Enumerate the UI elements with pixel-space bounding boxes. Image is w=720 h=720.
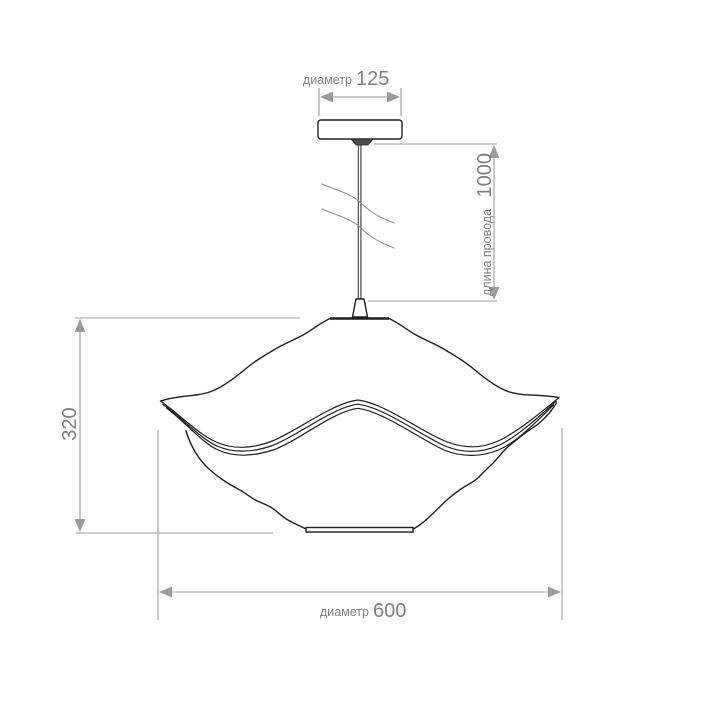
canopy-body	[318, 120, 402, 139]
dim-canopy-diameter-label: диаметр	[303, 73, 352, 87]
dim-canopy-diameter-value: 125	[356, 68, 389, 90]
dim-cord-length-text: длина провода 1000	[474, 153, 496, 296]
arrow-right	[548, 587, 561, 598]
pendant-lamp-drawing: диаметр 125 длина провода 1000 320 диаме…	[0, 0, 720, 720]
shade-upper-left-outline	[196, 319, 330, 396]
dim-shade-height-value: 320	[59, 407, 81, 440]
dim-cord-length-label: длина провода	[480, 209, 494, 296]
shade-lower-left-outline	[186, 431, 306, 529]
rim-line-top	[161, 398, 560, 448]
dim-shade-diameter: диаметр 600	[158, 428, 562, 622]
dim-cord-length: длина провода 1000	[368, 144, 500, 301]
dim-shade-height: 320	[59, 318, 300, 533]
rim-line-bottom	[167, 405, 554, 455]
dim-cord-length-value: 1000	[474, 153, 496, 198]
shade-bottom-foot	[306, 528, 413, 533]
shade-right-wing-tip	[523, 395, 559, 398]
arrow-down	[75, 519, 86, 532]
arrow-right	[387, 92, 400, 103]
ceiling-canopy	[318, 120, 402, 145]
technical-drawing-canvas: диаметр 125 длина провода 1000 320 диаме…	[0, 0, 720, 720]
dim-shade-diameter-label: диаметр	[320, 605, 369, 619]
shade-upper-right-outline	[389, 319, 523, 395]
arrow-left	[320, 92, 333, 103]
cord-connector-cone	[353, 299, 368, 317]
shade-left-wing-tip	[161, 395, 197, 401]
canopy-cord-grip	[351, 139, 373, 145]
suspension-cord	[358, 145, 361, 300]
arrow-left	[159, 587, 172, 598]
shade-lower-right-outline	[413, 403, 557, 529]
dim-shade-diameter-value: 600	[373, 600, 406, 622]
dim-canopy-diameter: диаметр 125	[303, 68, 401, 116]
arrow-up	[75, 319, 86, 332]
lampshade	[161, 319, 560, 533]
